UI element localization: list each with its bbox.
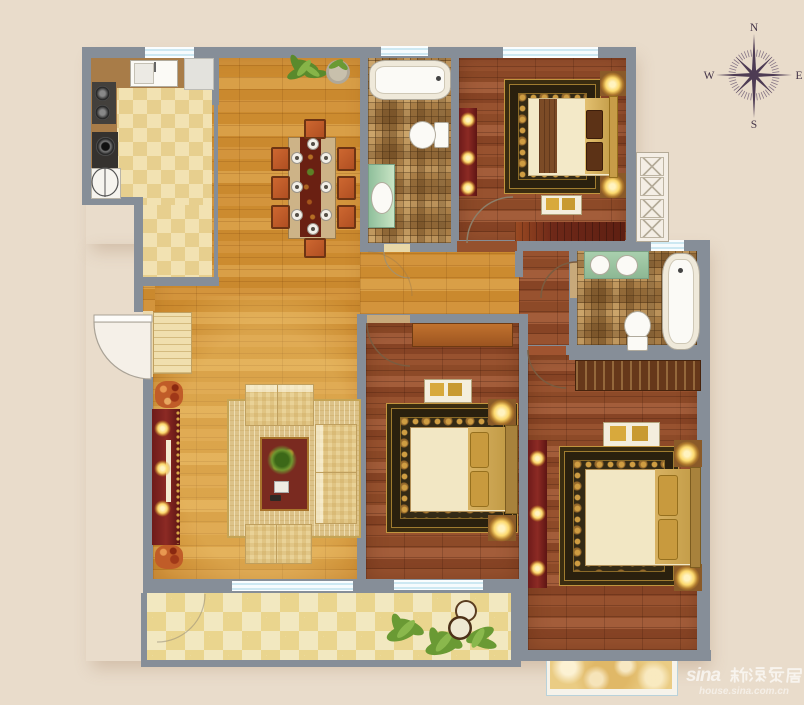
svg-text:E: E xyxy=(795,70,802,82)
svg-text:N: N xyxy=(750,22,759,34)
svg-text:W: W xyxy=(704,70,715,82)
svg-text:S: S xyxy=(751,119,757,131)
